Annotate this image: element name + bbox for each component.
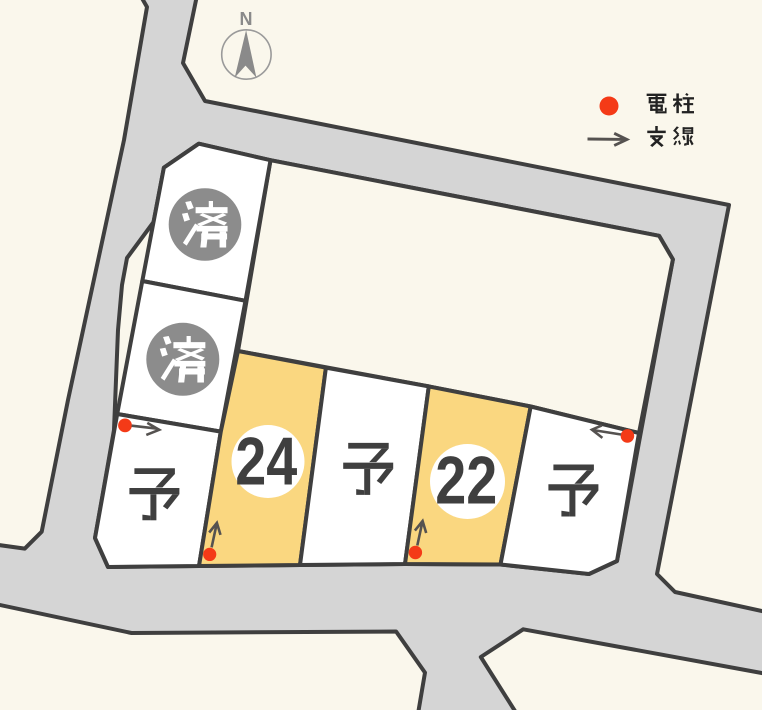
svg-text:24: 24 (235, 424, 297, 500)
svg-text:22: 22 (435, 443, 497, 519)
svg-text:N: N (240, 9, 253, 29)
